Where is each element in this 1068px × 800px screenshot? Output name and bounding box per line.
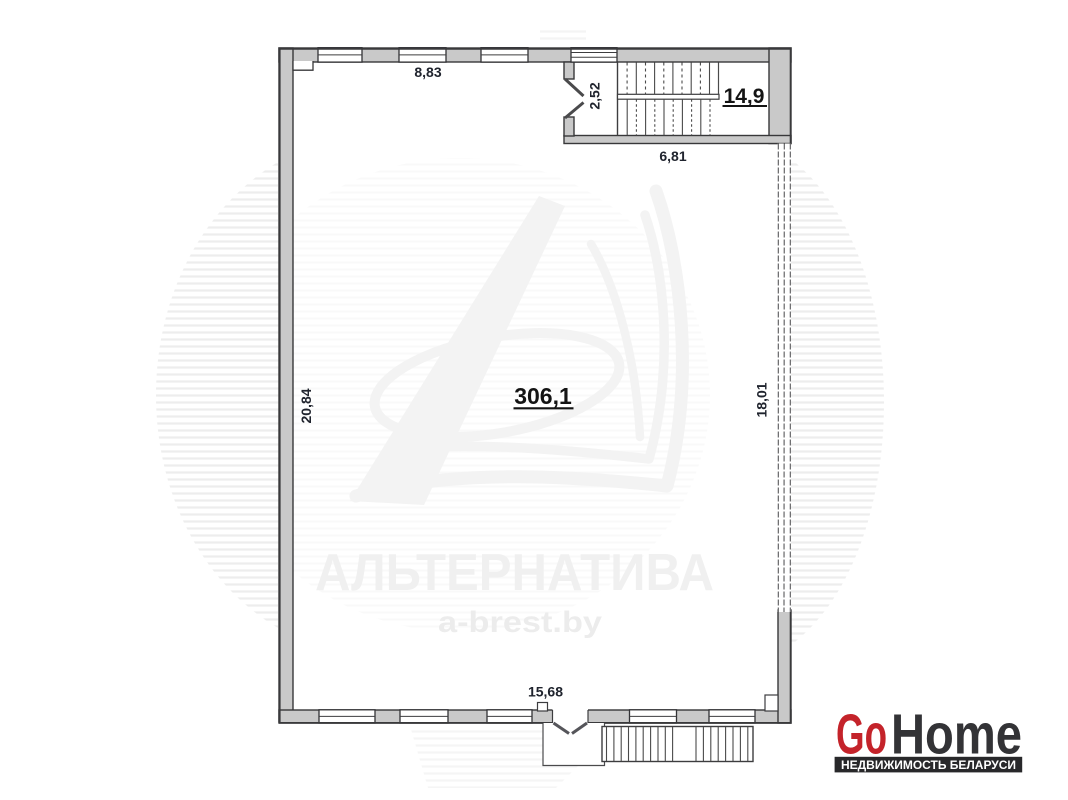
- svg-text:306,1: 306,1: [514, 383, 572, 409]
- svg-text:2,52: 2,52: [587, 82, 603, 109]
- svg-text:a-brest.by: a-brest.by: [438, 606, 602, 639]
- svg-text:18,01: 18,01: [754, 382, 770, 417]
- svg-text:6,81: 6,81: [659, 148, 686, 164]
- svg-text:НЕДВИЖИМОСТЬ БЕЛАРУСИ: НЕДВИЖИМОСТЬ БЕЛАРУСИ: [841, 760, 1016, 772]
- svg-text:14,9: 14,9: [724, 85, 765, 108]
- svg-text:8,83: 8,83: [414, 64, 441, 80]
- svg-text:15,68: 15,68: [528, 684, 563, 700]
- svg-text:20,84: 20,84: [298, 388, 314, 423]
- svg-text:АЛЬТЕРНАТИВА: АЛЬТЕРНАТИВА: [315, 544, 714, 602]
